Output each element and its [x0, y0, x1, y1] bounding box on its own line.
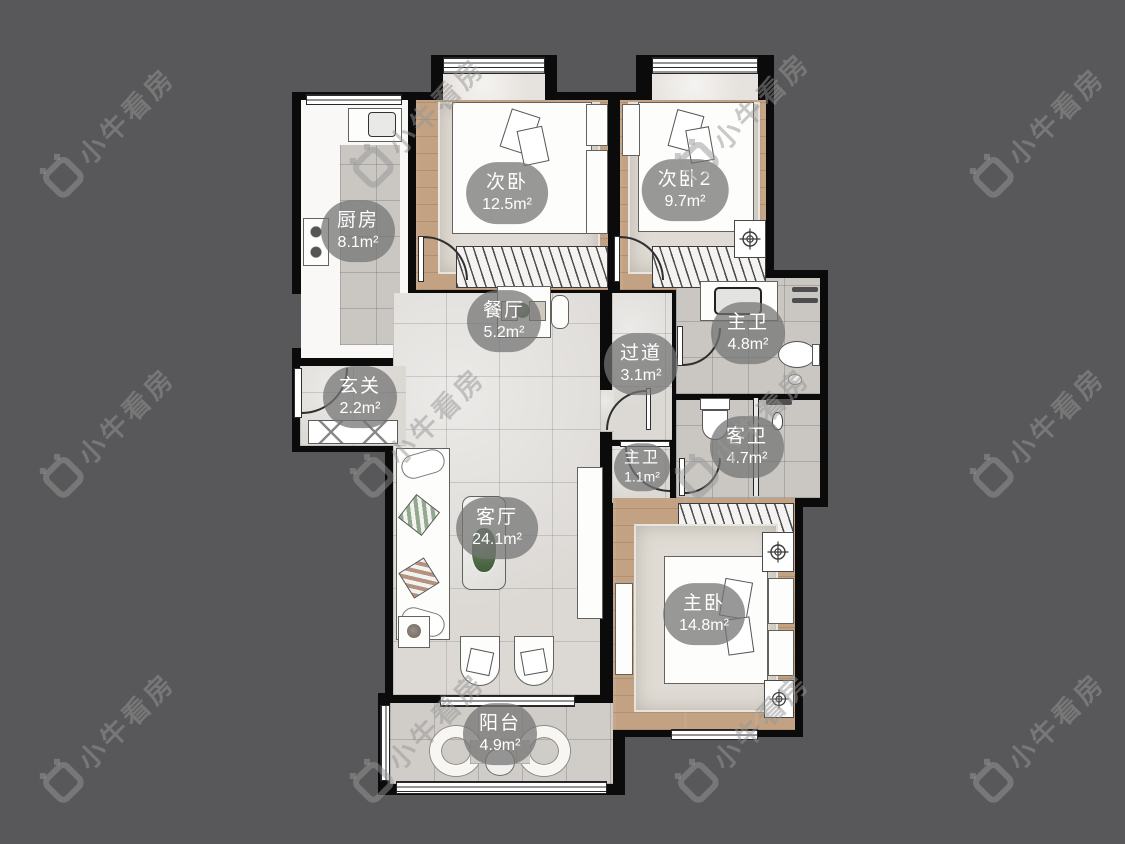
room-name: 厨房 — [337, 209, 379, 233]
room-name: 次卧2 — [658, 168, 713, 192]
room-label-bedroom-b: 次卧2 9.7m² — [642, 159, 729, 221]
balcony-window — [396, 781, 607, 794]
towel-bar — [792, 287, 818, 292]
room-label-foyer: 玄关 2.2m² — [323, 366, 397, 428]
room-label-master-bath: 主卫 4.8m² — [711, 302, 785, 364]
ac-unit-icon — [764, 680, 794, 718]
bedroom-a-wardrobe — [456, 246, 608, 288]
kitchen-sink-basin — [368, 112, 396, 137]
bedroom-b-nightstand — [622, 104, 640, 156]
room-name: 餐厅 — [483, 299, 525, 323]
entry-door-leaf — [294, 368, 302, 418]
armchair-pillow — [520, 648, 548, 676]
master-nightstand — [768, 630, 794, 676]
room-name: 客厅 — [476, 506, 518, 530]
bedroom-a-desk — [586, 150, 608, 234]
ac-unit-icon — [762, 532, 794, 572]
room-label-bedroom-a: 次卧 12.5m² — [466, 162, 548, 224]
armchair-pillow — [466, 648, 494, 676]
tv-console — [577, 467, 603, 619]
bay-window-a-sill — [443, 74, 545, 100]
bay-window-b-sill — [652, 74, 758, 100]
kitchen-window — [306, 94, 402, 105]
room-label-living: 客厅 24.1m² — [456, 497, 538, 559]
bedroom-a-nightstand — [586, 104, 608, 146]
room-area: 12.5m² — [482, 195, 532, 215]
room-area: 4.8m² — [728, 335, 769, 355]
room-name: 阳台 — [479, 712, 521, 736]
master-nightstand — [768, 578, 794, 624]
shower-fixture — [766, 399, 792, 405]
room-area: 2.2m² — [340, 399, 381, 419]
room-name: 主卫 — [727, 311, 769, 335]
room-name: 客卫 — [726, 425, 768, 449]
room-area: 4.9m² — [480, 736, 521, 756]
room-label-dining: 餐厅 5.2m² — [467, 290, 541, 352]
room-area: 3.1m² — [621, 366, 662, 386]
room-name: 次卧 — [486, 171, 528, 195]
room-area: 14.8m² — [679, 616, 729, 636]
bath-mat — [788, 374, 802, 385]
master-bath-toilet-tank — [812, 344, 820, 366]
room-name: 过道 — [620, 342, 662, 366]
towel-bar — [792, 298, 818, 303]
guest-bath-toilet-tank — [700, 398, 730, 410]
room-label-corridor: 过道 3.1m² — [604, 333, 678, 395]
room-label-master-bath-lobby: 主卫 1.1m² — [614, 443, 670, 491]
floor-plan: 厨房 8.1m² 次卧 12.5m² 次卧2 9.7m² 主卫 4.8m² 客卫… — [0, 0, 1125, 844]
room-area: 9.7m² — [665, 192, 706, 212]
bay-window-a-glass — [443, 57, 545, 74]
room-name: 玄关 — [339, 375, 381, 399]
room-label-guest-bath: 客卫 4.7m² — [710, 416, 784, 478]
room-label-balcony: 阳台 4.9m² — [463, 703, 537, 765]
room-area: 24.1m² — [472, 530, 522, 550]
room-area: 1.1m² — [624, 468, 660, 486]
room-label-kitchen: 厨房 8.1m² — [321, 200, 395, 262]
master-bedroom-window — [671, 729, 758, 740]
side-table-flower — [407, 624, 421, 638]
room-label-master-bedroom: 主卧 14.8m² — [663, 583, 745, 645]
master-bath-toilet — [778, 341, 816, 368]
room-area: 4.7m² — [727, 449, 768, 469]
ac-unit-icon — [734, 220, 766, 258]
balcony-side-window — [380, 705, 390, 781]
bay-window-b-glass — [652, 57, 758, 74]
room-name: 主卧 — [683, 592, 725, 616]
room-name: 主卫 — [624, 448, 660, 468]
master-dresser — [615, 583, 633, 675]
room-area: 8.1m² — [338, 233, 379, 253]
room-area: 5.2m² — [484, 323, 525, 343]
dining-bench — [551, 295, 569, 329]
